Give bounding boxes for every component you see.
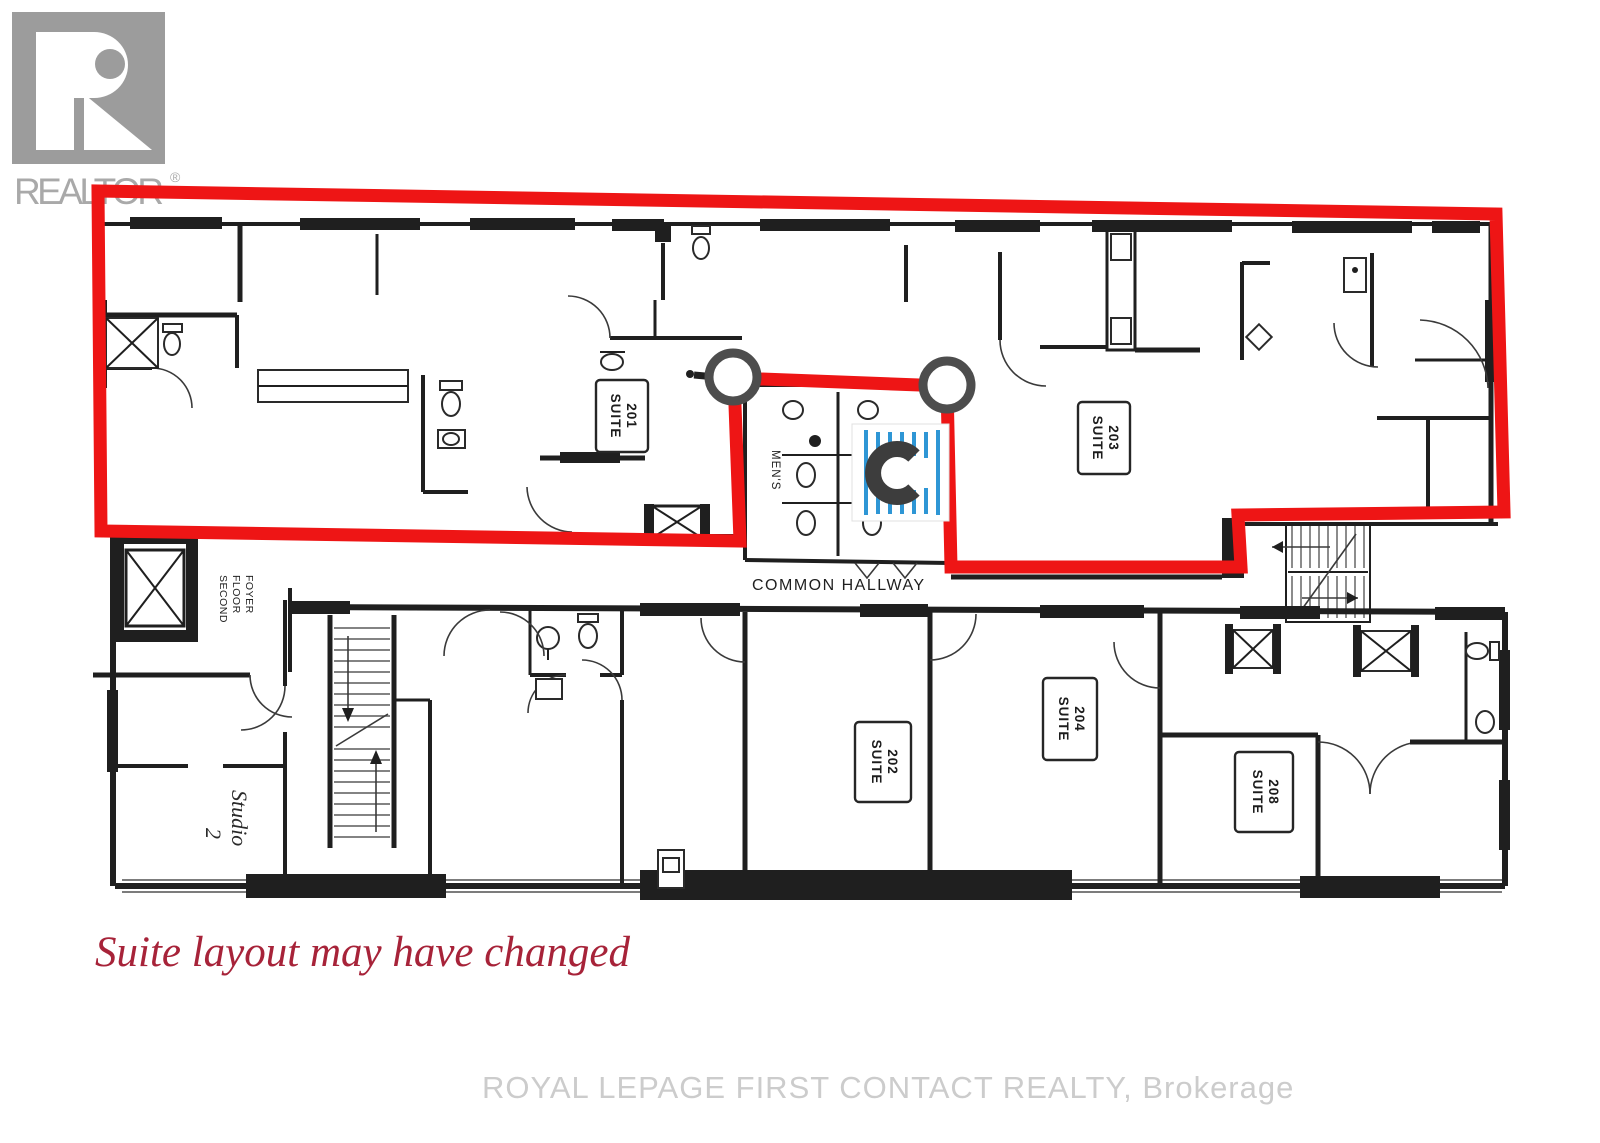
blue-stripes-icon[interactable] xyxy=(852,424,949,521)
registered-mark: ® xyxy=(170,169,181,185)
brokerage-watermark: ROYAL LEPAGE FIRST CONTACT REALTY, Broke… xyxy=(482,1070,1294,1105)
lower-right-partitions xyxy=(930,612,1505,886)
mens-washroom-label: MEN'S xyxy=(769,450,781,490)
suite-203-number: 203 xyxy=(1106,425,1121,451)
corner-marker-right[interactable] xyxy=(923,361,971,409)
floorplan-page: REALTOR ® xyxy=(0,0,1600,1143)
studio-2-label: Studio 2 xyxy=(201,790,252,846)
disclaimer-text: Suite layout may have changed xyxy=(95,929,630,976)
realtor-logo: REALTOR ® xyxy=(12,12,181,212)
suite-201-label: 201 SUITE xyxy=(596,380,648,452)
studio-word: Studio xyxy=(227,790,252,846)
common-hallway-label: COMMON HALLWAY xyxy=(752,577,926,594)
floorplan-svg: REALTOR ® xyxy=(0,0,1600,1143)
upper-middle-washroom xyxy=(568,226,742,370)
suite-201-name: SUITE xyxy=(608,394,623,439)
suite-204-name: SUITE xyxy=(1056,697,1071,742)
suite-208-label: 208 SUITE xyxy=(1235,752,1293,832)
suite-208-number: 208 xyxy=(1266,779,1281,805)
foyer-line-floor: FLOOR xyxy=(230,575,242,614)
suite-204-label: 204 SUITE xyxy=(1043,678,1097,760)
suite-202-number: 202 xyxy=(885,749,900,775)
suite-204-number: 204 xyxy=(1072,706,1087,732)
left-staircase xyxy=(330,615,394,848)
suite-203-interior xyxy=(1000,228,1491,507)
floor-plan-drawing xyxy=(93,217,1510,900)
lower-middle-partitions xyxy=(395,610,745,888)
foyer-line-second: SECOND xyxy=(217,575,229,623)
foyer-and-left-elevator xyxy=(93,534,292,717)
suite-202-label: 202 SUITE xyxy=(855,722,911,802)
studio-number: 2 xyxy=(201,828,226,839)
lower-left-partitions xyxy=(118,600,285,886)
suite-203-name: SUITE xyxy=(1090,416,1105,461)
suite-202-name: SUITE xyxy=(869,740,884,785)
corner-marker-left[interactable] xyxy=(709,353,757,401)
lower-outer-walls xyxy=(107,600,1510,900)
second-floor-foyer-label: SECOND FLOOR FOYER xyxy=(217,575,255,623)
suite-201-number: 201 xyxy=(624,403,639,429)
foyer-line-foyer: FOYER xyxy=(243,575,255,614)
suite-208-name: SUITE xyxy=(1250,770,1265,815)
suite-203-label: 203 SUITE xyxy=(1078,402,1130,474)
